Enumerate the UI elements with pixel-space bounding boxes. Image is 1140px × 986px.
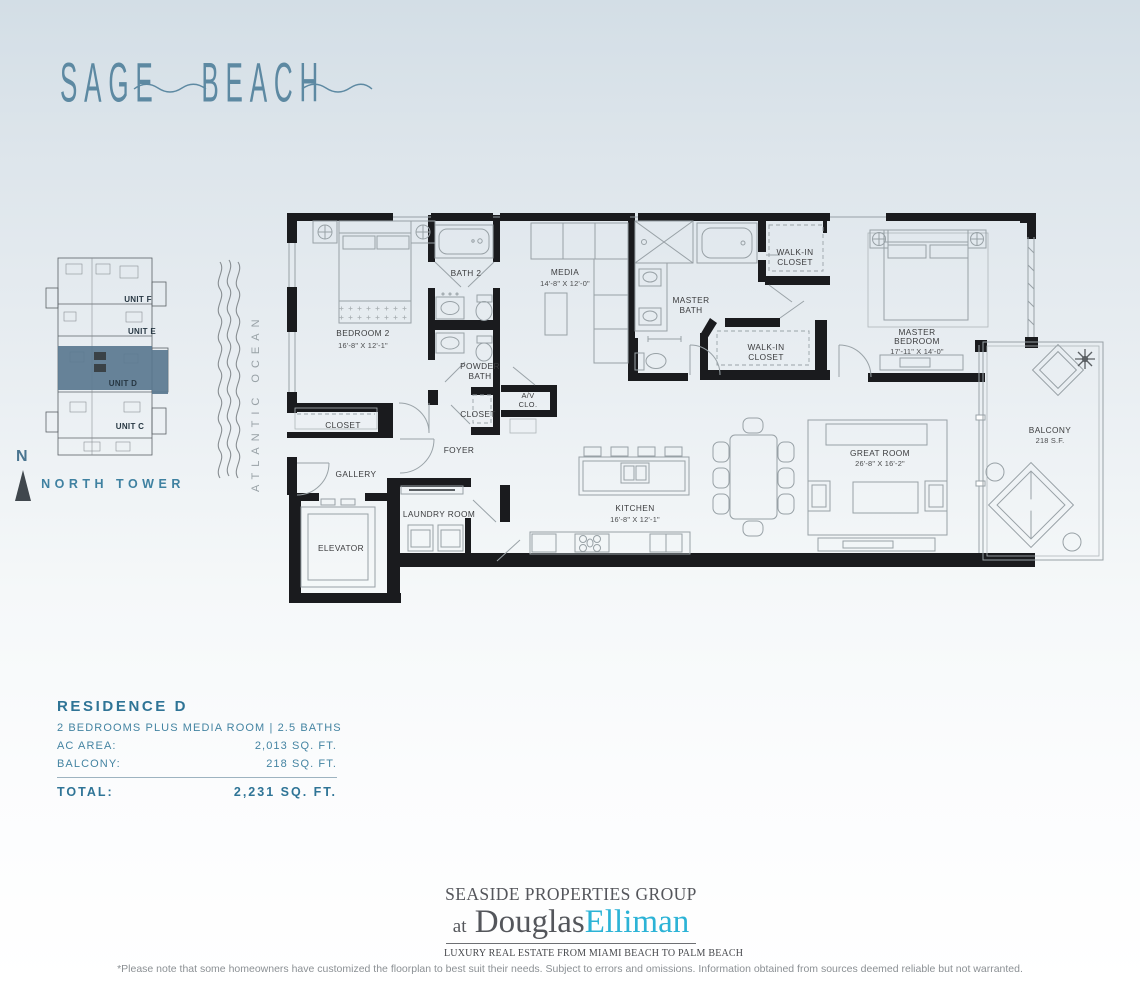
compass-n-label: N bbox=[16, 448, 28, 466]
bed-icon-bedroom2 bbox=[313, 221, 435, 323]
room-label-laundry: LAUNDRY ROOM bbox=[403, 509, 475, 519]
residence-row-balcony: BALCONY: 218 SQ. FT. bbox=[57, 758, 337, 770]
room-label-great-room: GREAT ROOM bbox=[850, 448, 910, 458]
powder-bath-fixtures-icon bbox=[436, 333, 492, 361]
keyplan-unit-d-label: UNIT D bbox=[109, 379, 137, 388]
total-label: TOTAL: bbox=[57, 785, 114, 799]
atlantic-ocean-label: ATLANTIC OCEAN bbox=[250, 262, 262, 492]
brand-rule bbox=[446, 943, 696, 944]
room-label-wic1-1: WALK-IN bbox=[776, 247, 813, 257]
residence-subtitle: 2 BEDROOMS PLUS MEDIA ROOM | 2.5 BATHS bbox=[57, 722, 337, 734]
balcony-area-value: 218 SQ. FT. bbox=[266, 758, 337, 770]
keyplan-unit-f-label: UNIT F bbox=[124, 295, 152, 304]
ac-area-label: AC AREA: bbox=[57, 740, 117, 752]
brand-douglas: Douglas bbox=[475, 904, 585, 940]
disclaimer-text: *Please note that some homeowners have c… bbox=[0, 963, 1140, 975]
balcony-furniture-icon bbox=[986, 345, 1083, 551]
room-label-bath2: BATH 2 bbox=[451, 268, 482, 278]
floorplan: BEDROOM 2 16'-8" X 12'-1" BATH 2 MEDIA 1… bbox=[283, 205, 1113, 605]
branding-block: SEASIDE PROPERTIES GROUP at DouglasEllim… bbox=[444, 884, 698, 959]
logo-word-sage: SAGE bbox=[60, 53, 160, 114]
room-label-wic2-2: CLOSET bbox=[748, 352, 784, 362]
palm-icon bbox=[1075, 349, 1095, 369]
residence-row-total: TOTAL: 2,231 SQ. FT. bbox=[57, 777, 337, 799]
kitchen-counter-icon bbox=[530, 532, 690, 554]
room-label-master-bath-2: BATH bbox=[679, 305, 702, 315]
room-dims-media: 14'-8" X 12'-0" bbox=[540, 279, 590, 288]
room-label-master-bath-1: MASTER bbox=[673, 295, 710, 305]
brand-tagline: LUXURY REAL ESTATE FROM MIAMI BEACH TO P… bbox=[444, 948, 698, 959]
room-dims-bedroom2: 16'-8" X 12'-1" bbox=[338, 341, 388, 350]
room-dims-great-room: 26'-8" X 16'-2" bbox=[855, 459, 905, 468]
room-label-powder-1: POWDER bbox=[460, 361, 500, 371]
total-value: 2,231 SQ. FT. bbox=[234, 785, 337, 799]
media-sofa-icon bbox=[531, 223, 628, 363]
room-label-balcony: BALCONY bbox=[1029, 425, 1072, 435]
kitchen-island-icon bbox=[579, 447, 689, 495]
room-label-foyer: FOYER bbox=[444, 445, 475, 455]
room-label-kitchen: KITCHEN bbox=[615, 503, 654, 513]
room-label-av-2: CLO. bbox=[519, 400, 538, 409]
keyplan-unit-c-label: UNIT C bbox=[116, 422, 144, 431]
logo-word-beach: BEACH bbox=[201, 53, 325, 114]
residence-info: RESIDENCE D 2 BEDROOMS PLUS MEDIA ROOM |… bbox=[57, 698, 337, 799]
brand-elliman: Elliman bbox=[585, 904, 689, 940]
balcony-area-label: BALCONY: bbox=[57, 758, 121, 770]
brochure-page: SAGE BEACH bbox=[0, 0, 1140, 986]
room-label-av-1: A/V bbox=[521, 391, 534, 400]
brand-group-name: SEASIDE PROPERTIES GROUP bbox=[444, 884, 698, 905]
room-dims-kitchen: 16'-8" X 12'-1" bbox=[610, 515, 660, 524]
keyplan-unit-e-label: UNIT E bbox=[128, 327, 156, 336]
room-label-media: MEDIA bbox=[551, 267, 579, 277]
room-label-wic1-2: CLOSET bbox=[777, 257, 813, 267]
room-label-master-bedroom-2: BEDROOM bbox=[894, 336, 940, 346]
keyplan: UNIT F UNIT E UNIT D UNIT C bbox=[30, 252, 180, 467]
brand-at: at bbox=[453, 916, 467, 937]
room-label-gallery: GALLERY bbox=[336, 469, 377, 479]
room-dims-master-bedroom: 17'-11" X 14'-0" bbox=[890, 347, 944, 356]
residence-title: RESIDENCE D bbox=[57, 698, 337, 715]
dining-table-icon bbox=[713, 418, 794, 536]
north-tower-label: NORTH TOWER bbox=[33, 477, 193, 491]
great-room-sofa-icon bbox=[808, 420, 947, 551]
ac-area-value: 2,013 SQ. FT. bbox=[255, 740, 337, 752]
walls bbox=[287, 213, 1038, 603]
room-label-bedroom2: BEDROOM 2 bbox=[336, 328, 389, 338]
room-label-wic2-1: WALK-IN bbox=[747, 342, 784, 352]
room-dims-balcony: 218 S.F. bbox=[1036, 436, 1065, 445]
brand-logo: at DouglasElliman bbox=[444, 905, 698, 940]
room-label-closet-bedroom2: CLOSET bbox=[325, 420, 361, 430]
residence-row-ac: AC AREA: 2,013 SQ. FT. bbox=[57, 740, 337, 752]
room-label-powder-2: BATH bbox=[468, 371, 491, 381]
sage-beach-logo: SAGE BEACH bbox=[50, 48, 390, 128]
room-label-elevator: ELEVATOR bbox=[318, 543, 364, 553]
room-label-closet-hall: CLOSET bbox=[460, 409, 496, 419]
ocean-waves-icon bbox=[210, 258, 252, 488]
